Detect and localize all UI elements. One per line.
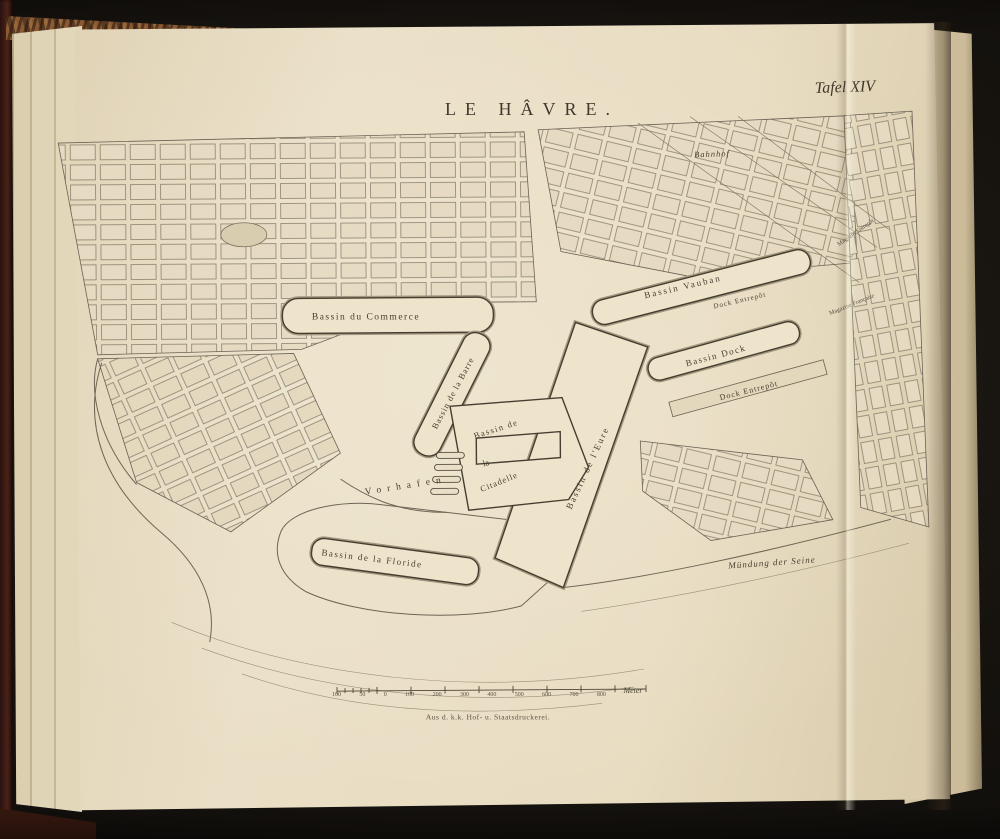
book-spine bbox=[0, 0, 13, 839]
scale-tick-label: 100 bbox=[332, 692, 341, 698]
scale-tick-label: 300 bbox=[460, 692, 469, 698]
label-bahnhof: Bahnhof bbox=[694, 149, 730, 159]
page-right-edge-shadow bbox=[925, 22, 951, 810]
district-midright bbox=[640, 440, 833, 541]
scale-tick-label: 400 bbox=[487, 692, 496, 698]
map-engraving bbox=[38, 57, 963, 743]
scale-tick-label: 700 bbox=[570, 692, 579, 698]
wave-line-1 bbox=[172, 619, 644, 684]
finger-piers bbox=[430, 452, 464, 494]
scale-tick-label: 50 bbox=[359, 692, 365, 698]
scale-tick-label: 800 bbox=[597, 692, 606, 698]
plate-title: LE HÂVRE. bbox=[445, 100, 619, 118]
scale-tick-labels: 100 50 0 100 200 300 400 500 600 700 800 bbox=[332, 692, 606, 698]
basin-citadelle-shape bbox=[450, 397, 589, 510]
scale-tick-label: 200 bbox=[433, 692, 442, 698]
scale-tick-label: 0 bbox=[384, 692, 387, 698]
park-square bbox=[221, 223, 267, 247]
scale-tick-label: 600 bbox=[542, 692, 551, 698]
imprint: Aus d. k.k. Hof- u. Staatsdruckerei. bbox=[426, 713, 550, 721]
scale-tick-label: 100 bbox=[405, 692, 414, 698]
scale-unit-label: Meter bbox=[623, 687, 642, 695]
map-engraving-area bbox=[38, 57, 963, 743]
seine-waterline bbox=[581, 543, 909, 611]
label-bassin-du-commerce: Bassin du Commerce bbox=[312, 313, 420, 323]
district-right-strip bbox=[844, 111, 929, 528]
scale-tick-label: 500 bbox=[515, 692, 524, 698]
page-fold-crease bbox=[836, 24, 856, 810]
